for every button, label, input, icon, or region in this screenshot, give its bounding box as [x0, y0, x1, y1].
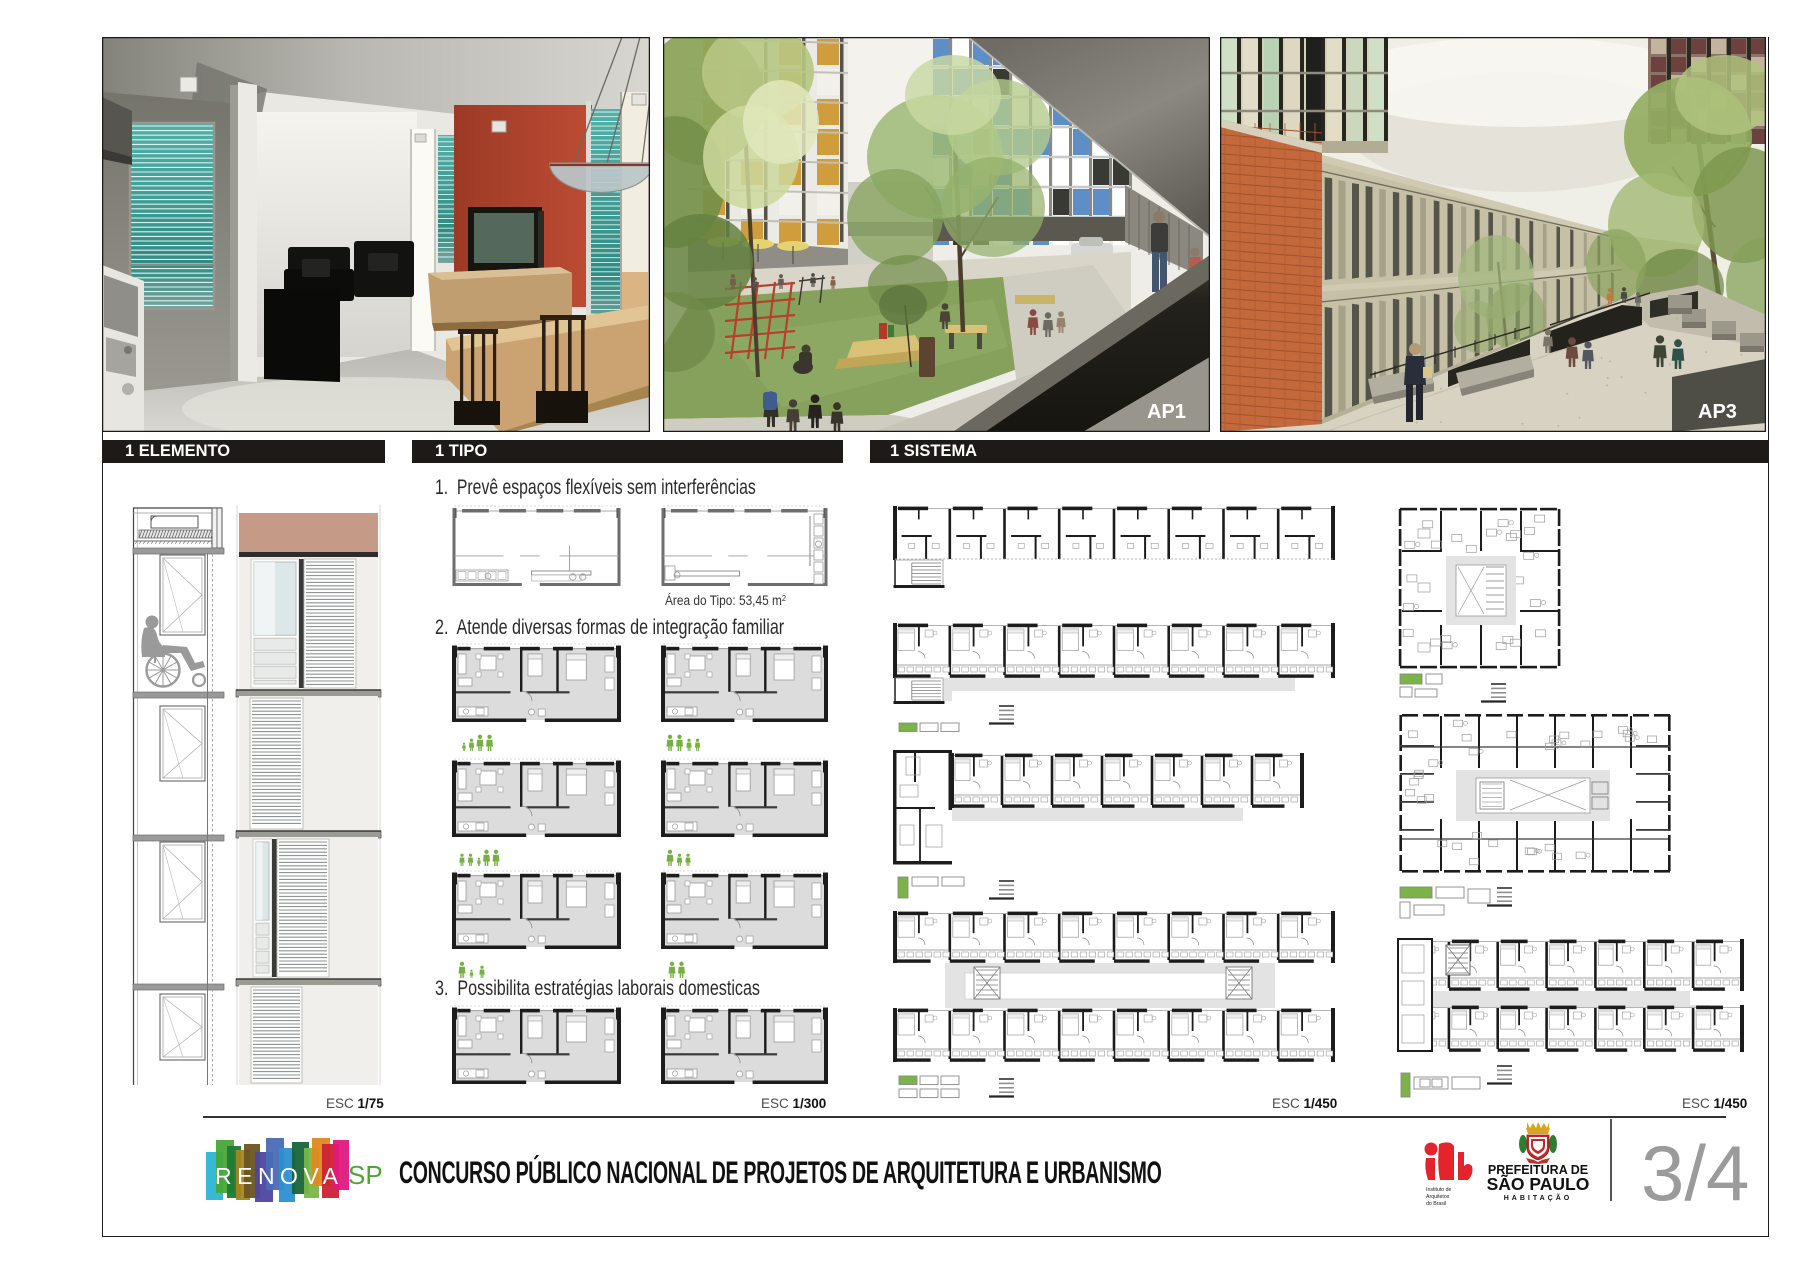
- svg-text:AP3: AP3: [1698, 401, 1737, 423]
- svg-text:Instituto de: Instituto de: [1426, 1187, 1451, 1193]
- svg-text:AP1: AP1: [1147, 401, 1186, 423]
- svg-text:RENOVA: RENOVA: [215, 1163, 343, 1189]
- svg-text:do Brasil: do Brasil: [1426, 1201, 1446, 1207]
- svg-text:Arquitetos: Arquitetos: [1426, 1194, 1450, 1200]
- svg-text:SP: SP: [348, 1160, 383, 1190]
- svg-text:HABITAÇÃO: HABITAÇÃO: [1504, 1193, 1572, 1202]
- svg-text:SÃO PAULO: SÃO PAULO: [1487, 1173, 1590, 1194]
